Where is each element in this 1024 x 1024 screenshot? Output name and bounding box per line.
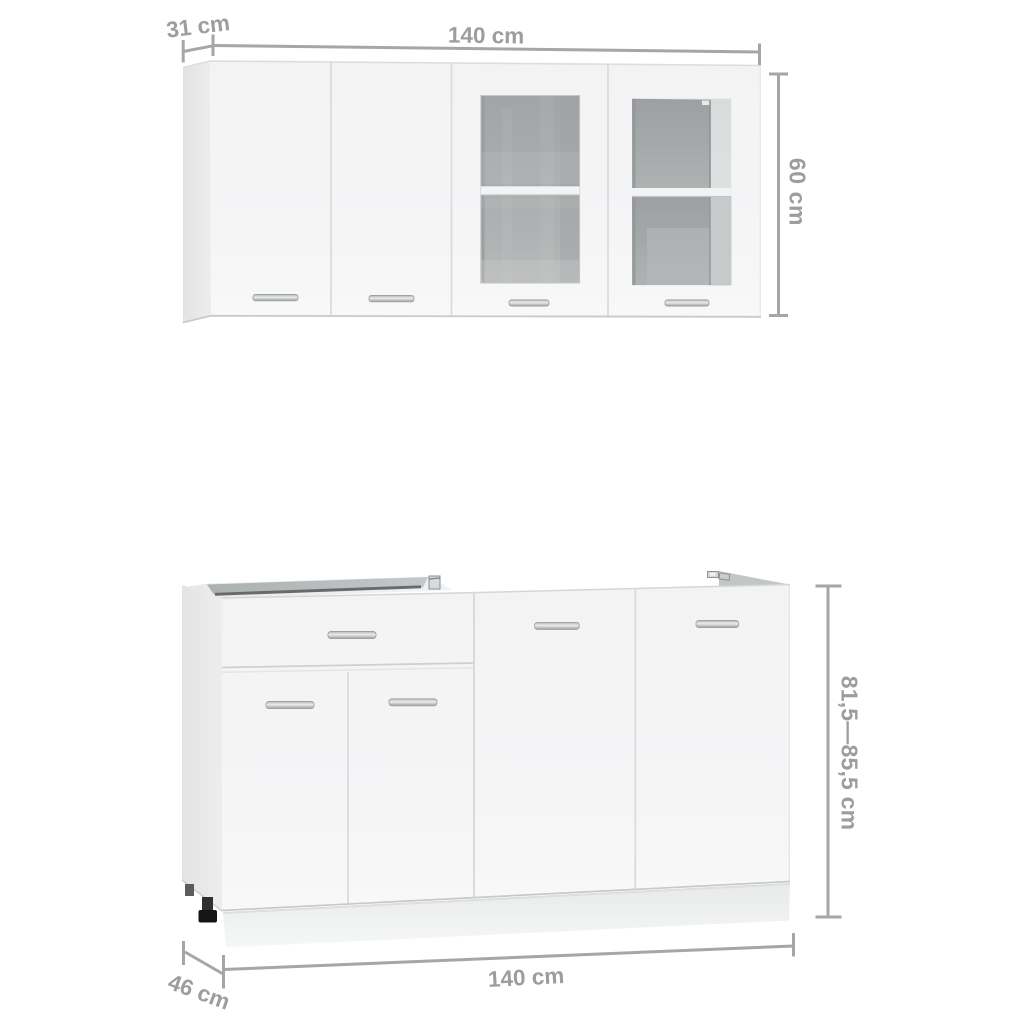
svg-text:140 cm: 140 cm	[448, 23, 525, 49]
svg-text:81,5—85,5 cm: 81,5—85,5 cm	[837, 676, 863, 831]
svg-text:60 cm: 60 cm	[785, 158, 811, 226]
svg-text:140 cm: 140 cm	[487, 963, 565, 992]
